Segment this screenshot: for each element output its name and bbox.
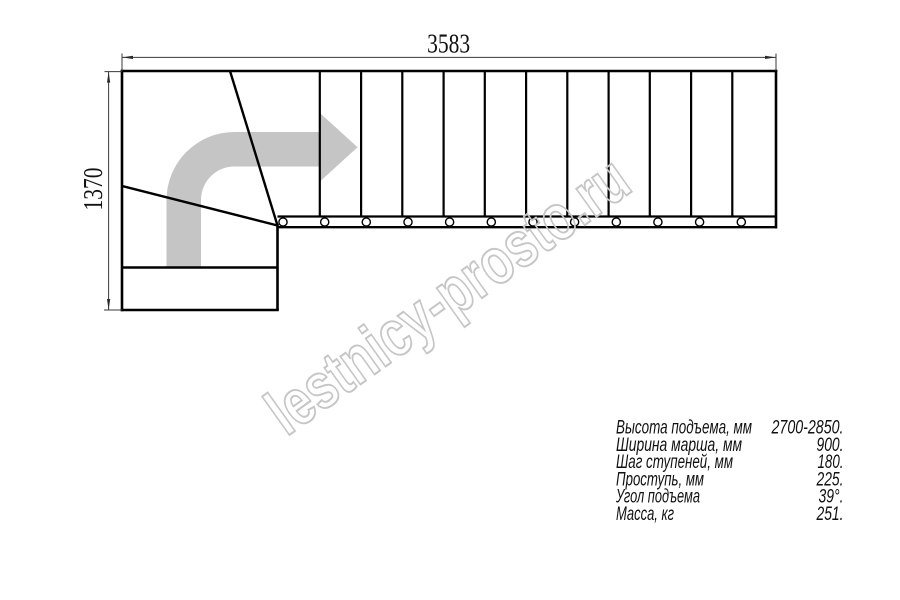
svg-text:3583: 3583 [427,28,470,59]
svg-text:1370: 1370 [77,168,108,211]
svg-text:251.: 251. [816,504,844,525]
svg-text:Масса, кг: Масса, кг [616,504,674,525]
